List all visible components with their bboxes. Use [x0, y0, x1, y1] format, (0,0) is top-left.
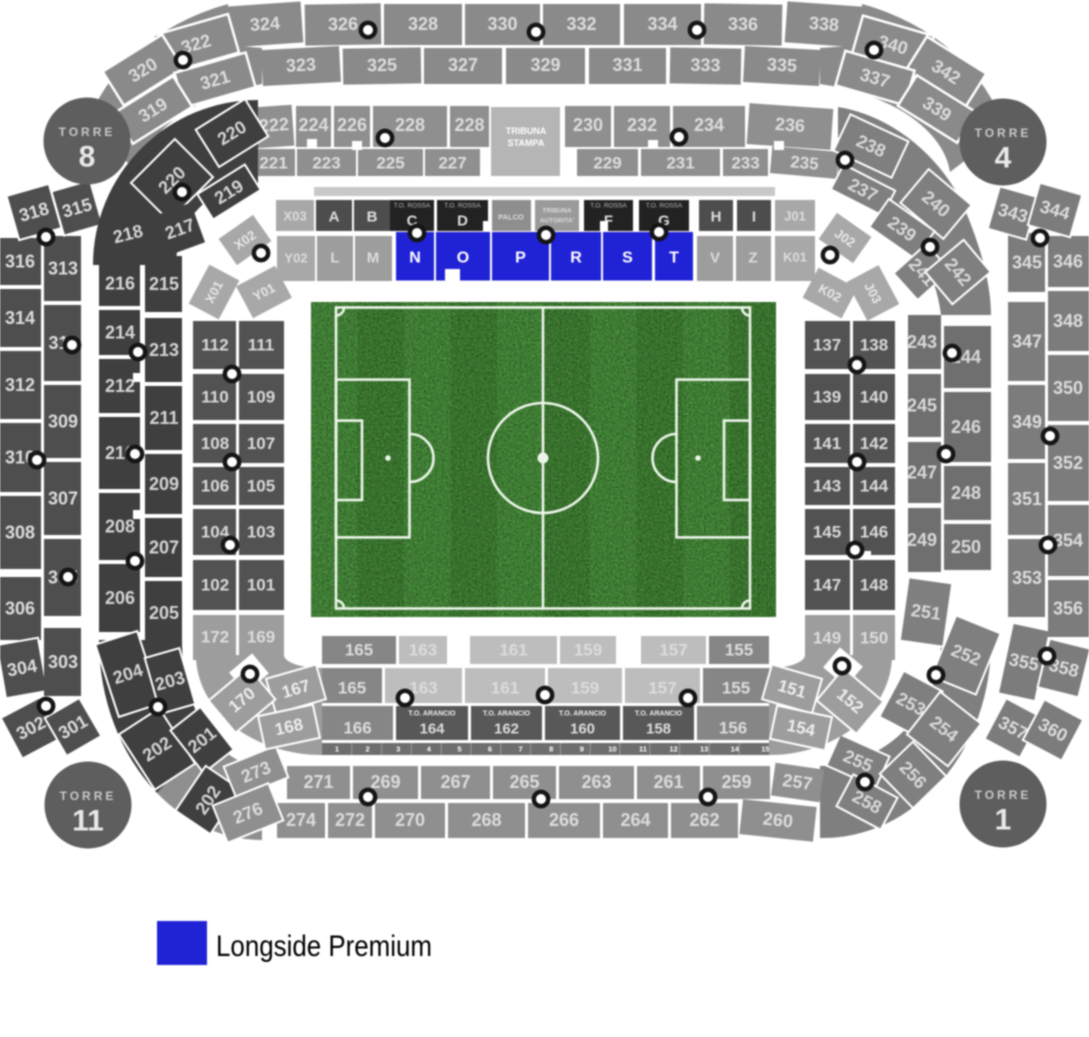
svg-text:245: 245: [907, 396, 937, 416]
svg-text:313: 313: [48, 259, 78, 279]
svg-text:161: 161: [491, 679, 519, 698]
svg-text:X03: X03: [283, 209, 306, 224]
svg-text:328: 328: [408, 14, 438, 34]
svg-text:312: 312: [5, 375, 35, 395]
svg-text:15: 15: [761, 745, 769, 754]
svg-text:346: 346: [1053, 252, 1083, 272]
svg-text:Y02: Y02: [284, 251, 307, 266]
svg-text:K01: K01: [783, 250, 807, 265]
svg-text:272: 272: [335, 810, 365, 830]
svg-text:160: 160: [570, 721, 595, 738]
svg-text:1: 1: [335, 745, 339, 754]
svg-text:327: 327: [448, 55, 478, 75]
svg-text:348: 348: [1053, 311, 1083, 331]
svg-text:259: 259: [721, 772, 751, 792]
svg-text:234: 234: [694, 115, 724, 135]
svg-text:262: 262: [689, 810, 719, 830]
svg-text:329: 329: [530, 55, 560, 75]
svg-text:233: 233: [731, 154, 759, 173]
svg-text:8: 8: [79, 141, 96, 174]
svg-text:236: 236: [774, 114, 805, 136]
svg-text:14: 14: [731, 745, 740, 754]
svg-text:257: 257: [781, 770, 814, 794]
svg-text:7: 7: [519, 745, 523, 754]
svg-text:165: 165: [338, 679, 366, 698]
svg-text:356: 356: [1053, 599, 1083, 619]
svg-text:270: 270: [395, 810, 425, 830]
svg-text:2: 2: [366, 745, 370, 754]
svg-text:139: 139: [813, 388, 841, 407]
svg-text:I: I: [752, 209, 756, 226]
svg-text:221: 221: [259, 154, 287, 173]
svg-text:331: 331: [612, 55, 642, 75]
svg-text:155: 155: [725, 641, 753, 660]
svg-text:230: 230: [573, 115, 603, 135]
svg-text:330: 330: [487, 14, 517, 34]
svg-text:206: 206: [105, 588, 135, 608]
svg-text:333: 333: [690, 55, 720, 76]
svg-text:140: 140: [860, 388, 888, 407]
svg-text:164: 164: [419, 721, 445, 738]
svg-text:232: 232: [627, 115, 657, 135]
svg-text:149: 149: [813, 629, 841, 648]
svg-text:137: 137: [813, 336, 841, 355]
svg-text:8: 8: [549, 745, 553, 754]
svg-text:169: 169: [247, 628, 275, 647]
svg-text:3: 3: [396, 745, 400, 754]
svg-text:229: 229: [593, 154, 621, 173]
svg-text:158: 158: [646, 721, 671, 738]
svg-text:264: 264: [620, 810, 650, 830]
svg-text:274: 274: [286, 810, 316, 830]
svg-text:S: S: [622, 250, 633, 267]
svg-text:213: 213: [149, 340, 179, 360]
svg-text:226: 226: [337, 115, 367, 135]
svg-text:P: P: [515, 250, 526, 267]
svg-text:162: 162: [494, 721, 519, 738]
svg-text:265: 265: [509, 772, 539, 792]
svg-text:350: 350: [1053, 378, 1083, 398]
svg-text:209: 209: [149, 474, 179, 494]
svg-text:T.O. ARANCIO: T.O. ARANCIO: [559, 711, 607, 718]
svg-text:156: 156: [719, 719, 747, 738]
svg-text:PALCO: PALCO: [498, 213, 524, 222]
svg-text:224: 224: [298, 115, 328, 135]
svg-text:271: 271: [303, 772, 333, 792]
svg-text:T.O. ROSSA: T.O. ROSSA: [590, 203, 627, 210]
svg-text:211: 211: [149, 408, 178, 428]
svg-text:324: 324: [249, 13, 280, 35]
svg-text:146: 146: [860, 523, 888, 542]
svg-text:9: 9: [580, 745, 584, 754]
svg-text:338: 338: [808, 13, 839, 35]
svg-text:109: 109: [247, 388, 275, 407]
svg-text:263: 263: [581, 772, 611, 792]
svg-text:107: 107: [247, 434, 275, 453]
svg-text:334: 334: [647, 14, 677, 34]
svg-text:12: 12: [669, 745, 677, 754]
svg-text:150: 150: [860, 629, 888, 648]
svg-text:208: 208: [105, 517, 135, 537]
svg-text:111: 111: [248, 336, 275, 355]
svg-text:246: 246: [951, 417, 981, 437]
svg-text:B: B: [367, 209, 378, 226]
svg-text:TORRE: TORRE: [60, 789, 117, 803]
svg-text:O: O: [457, 250, 469, 267]
svg-text:235: 235: [790, 152, 820, 173]
svg-text:323: 323: [285, 54, 316, 76]
svg-text:147: 147: [813, 576, 841, 595]
svg-text:103: 103: [247, 523, 275, 542]
svg-text:L: L: [330, 250, 339, 267]
svg-text:4: 4: [995, 142, 1012, 175]
svg-text:268: 268: [471, 810, 501, 830]
svg-text:214: 214: [105, 323, 135, 343]
svg-text:248: 248: [951, 483, 981, 503]
svg-text:TRIBUNA: TRIBUNA: [542, 208, 572, 215]
svg-text:354: 354: [1053, 531, 1083, 551]
svg-text:247: 247: [907, 463, 937, 483]
svg-text:159: 159: [571, 679, 599, 698]
svg-text:267: 267: [440, 772, 470, 792]
svg-text:TORRE: TORRE: [59, 125, 116, 139]
svg-text:157: 157: [648, 679, 676, 698]
svg-text:T: T: [669, 250, 679, 267]
svg-text:163: 163: [409, 641, 437, 660]
svg-text:R: R: [570, 250, 582, 267]
svg-text:212: 212: [105, 376, 135, 396]
svg-text:STAMPA: STAMPA: [508, 138, 545, 148]
svg-text:303: 303: [48, 652, 78, 672]
svg-text:251: 251: [910, 600, 943, 624]
svg-text:145: 145: [813, 523, 841, 542]
svg-text:148: 148: [860, 576, 888, 595]
svg-text:T.O. ROSSA: T.O. ROSSA: [646, 203, 683, 210]
svg-text:J01: J01: [784, 209, 806, 224]
svg-text:101: 101: [247, 576, 275, 595]
svg-text:207: 207: [149, 538, 179, 558]
svg-text:A: A: [329, 209, 340, 226]
svg-text:314: 314: [5, 308, 35, 328]
svg-text:10: 10: [608, 745, 616, 754]
svg-text:216: 216: [105, 274, 135, 294]
svg-text:142: 142: [860, 434, 888, 453]
svg-text:261: 261: [653, 772, 683, 792]
svg-text:228: 228: [395, 115, 425, 135]
svg-text:227: 227: [438, 154, 466, 173]
svg-text:306: 306: [5, 599, 35, 619]
svg-text:TORRE: TORRE: [975, 126, 1032, 140]
svg-text:309: 309: [48, 412, 78, 432]
svg-text:345: 345: [1012, 253, 1042, 273]
svg-text:11: 11: [639, 745, 647, 754]
svg-text:11: 11: [72, 805, 104, 838]
svg-text:228: 228: [454, 115, 484, 135]
svg-text:307: 307: [48, 489, 78, 509]
svg-text:225: 225: [376, 154, 404, 173]
svg-text:353: 353: [1012, 568, 1042, 588]
svg-text:TRIBUNA: TRIBUNA: [506, 126, 547, 136]
svg-text:165: 165: [345, 641, 373, 660]
svg-text:T.O. ROSSA: T.O. ROSSA: [444, 203, 481, 210]
svg-text:249: 249: [907, 530, 937, 550]
svg-text:N: N: [409, 250, 421, 267]
svg-text:231: 231: [666, 154, 694, 173]
svg-text:Longside Premium: Longside Premium: [216, 930, 432, 963]
svg-text:102: 102: [201, 576, 229, 595]
svg-text:157: 157: [659, 641, 687, 660]
svg-text:112: 112: [201, 336, 228, 355]
svg-text:215: 215: [149, 274, 179, 294]
svg-text:223: 223: [312, 154, 340, 173]
svg-text:144: 144: [860, 477, 889, 496]
svg-text:V: V: [710, 250, 720, 267]
svg-text:155: 155: [722, 679, 750, 698]
svg-text:352: 352: [1053, 453, 1083, 473]
svg-text:205: 205: [149, 603, 179, 623]
svg-text:166: 166: [343, 719, 371, 738]
svg-text:105: 105: [247, 477, 275, 496]
svg-text:250: 250: [951, 537, 981, 557]
svg-text:110: 110: [201, 388, 228, 407]
svg-text:T.O. ARANCIO: T.O. ARANCIO: [408, 711, 456, 718]
svg-text:332: 332: [566, 14, 596, 34]
svg-text:141: 141: [813, 434, 841, 453]
svg-text:161: 161: [499, 641, 527, 660]
svg-text:6: 6: [488, 745, 492, 754]
svg-text:260: 260: [762, 808, 794, 831]
svg-text:AUTORITA': AUTORITA': [540, 218, 575, 225]
svg-text:351: 351: [1012, 489, 1042, 509]
svg-text:T.O. ARANCIO: T.O. ARANCIO: [483, 711, 531, 718]
svg-text:108: 108: [201, 434, 229, 453]
svg-text:1: 1: [995, 804, 1012, 837]
svg-text:106: 106: [201, 477, 229, 496]
svg-text:349: 349: [1012, 412, 1042, 432]
svg-text:308: 308: [5, 523, 35, 543]
svg-text:347: 347: [1012, 332, 1042, 352]
svg-text:243: 243: [907, 332, 937, 352]
svg-text:T.O. ROSSA: T.O. ROSSA: [394, 203, 431, 210]
svg-text:325: 325: [367, 55, 397, 76]
svg-text:143: 143: [813, 477, 841, 496]
svg-text:269: 269: [370, 772, 400, 792]
svg-text:266: 266: [549, 810, 579, 830]
svg-text:T.O. ARANCIO: T.O. ARANCIO: [635, 711, 683, 718]
svg-text:TORRE: TORRE: [975, 788, 1032, 802]
svg-text:5: 5: [457, 745, 461, 754]
svg-text:Z: Z: [748, 250, 757, 267]
svg-text:172: 172: [201, 628, 229, 647]
svg-text:M: M: [367, 250, 380, 267]
svg-text:D: D: [457, 213, 468, 230]
svg-text:326: 326: [328, 14, 358, 35]
svg-text:138: 138: [860, 336, 888, 355]
svg-text:336: 336: [728, 14, 758, 35]
svg-text:13: 13: [700, 745, 708, 754]
svg-text:316: 316: [5, 252, 35, 272]
svg-text:335: 335: [766, 54, 797, 76]
svg-text:159: 159: [574, 641, 602, 660]
svg-text:H: H: [711, 209, 722, 226]
